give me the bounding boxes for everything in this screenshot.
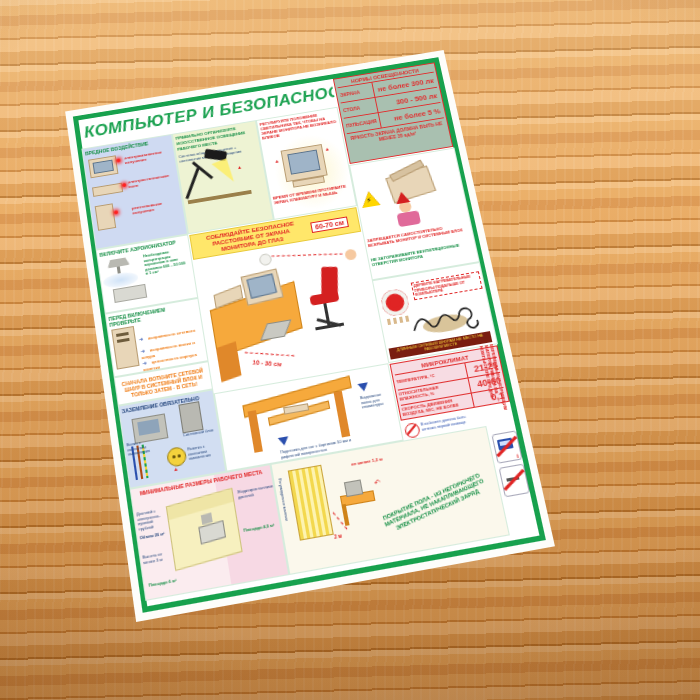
lamp-light-cone	[212, 158, 236, 186]
row-label: ЭКРАНА	[339, 87, 374, 98]
grounding-label: Розетка с контактом заземления	[187, 442, 221, 462]
ionizer-note: Необходимая концентрация аэроионов в зон…	[143, 248, 189, 277]
head-icon	[344, 248, 357, 260]
heater-note: ДЕРЖИТЕ НАГРЕВАТЕЛЬНЫЕ ПРИБОРЫ ПОДАЛЬШЕ …	[411, 271, 483, 300]
system-unit-icon	[111, 326, 139, 370]
crt-label: Дисплей с электронно-лучевой трубкой	[136, 508, 166, 533]
sight-line	[271, 253, 342, 256]
aisle-value: не менее 1,2 м	[351, 456, 383, 467]
red-arrow-icon: ▲	[237, 165, 243, 170]
prohibition-circle-icon	[404, 422, 421, 439]
illumination-table: НОРМЫ ОСВЕЩЕННОСТИ ЭКРАНА не более 300 л…	[333, 62, 453, 164]
red-arrow-icon: ▲	[324, 147, 330, 152]
no-laptop-sign-icon: i	[491, 430, 522, 463]
keyboard-distance-value: 10 - 30 см	[252, 359, 282, 367]
room-cube	[166, 488, 243, 572]
striped-hat-icon	[394, 191, 410, 205]
info-mark: i	[516, 453, 519, 460]
open-system-unit-icon	[385, 166, 436, 204]
airflow-arrow-icon: ↶	[374, 478, 382, 488]
height-label: Высота не менее 3 м	[142, 551, 171, 566]
poster-tilt-wrapper: КОМПЬЮТЕР И БЕЗОПАСНОСТЬ НОРМЫ ОСВЕЩЕННО…	[65, 50, 555, 622]
harmful-panel: ВРЕДНОЕ ВОЗДЕЙСТВИЕ электромагнитное изл…	[83, 135, 187, 249]
keyboard-distance-line	[245, 352, 295, 356]
wooden-desk-photo: КОМПЬЮТЕР И БЕЗОПАСНОСТЬ НОРМЫ ОСВЕЩЕННО…	[0, 0, 700, 700]
floor-note: ПОКРЫТИЕ ПОЛА - ИЗ НЕГОРЮЧЕГО МАТЕРИАЛА,…	[374, 468, 495, 538]
area-crt-label: Площадь 6 м²	[148, 579, 176, 589]
red-arrow-icon: ▲	[274, 159, 280, 164]
monitor-icon	[88, 155, 118, 178]
area-lcd-label: Площадь 4,5 м²	[243, 523, 275, 533]
volume-label: Объем 20 м³	[140, 532, 166, 541]
tray-note-label: Выдвижная полка для клавиатуры	[360, 391, 392, 410]
workplace-panel: МИНИМАЛЬНЫЕ РАЗМЕРЫ РАБОЧЕГО МЕСТА Диспл…	[131, 465, 288, 599]
poster-margin: КОМПЬЮТЕР И БЕЗОПАСНОСТЬ НОРМЫ ОСВЕЩЕННО…	[65, 50, 555, 622]
row-label: СТОЛА	[342, 102, 377, 113]
electric-warning-triangle-icon: ⚡	[360, 190, 381, 208]
lcd-label: Жидкокристаллический дисплей	[237, 485, 270, 500]
desk-leg	[248, 410, 263, 453]
red-arrow-icon: ▲	[173, 466, 179, 472]
system-unit-icon	[178, 401, 203, 433]
keyboard-icon	[92, 183, 123, 197]
no-smoking-sign-icon	[499, 464, 530, 498]
poster-green-frame: КОМПЬЮТЕР И БЕЗОПАСНОСТЬ НОРМЫ ОСВЕЩЕННО…	[73, 57, 546, 613]
hazard-label: рентгеновское излучение	[131, 198, 180, 215]
poster-pad: КОМПЬЮТЕР И БЕЗОПАСНОСТЬ НОРМЫ ОСВЕЩЕННО…	[65, 50, 555, 622]
desk-lamp-icon	[185, 168, 199, 199]
system-unit-icon	[95, 203, 117, 231]
no-open-panel: ⚡ ЗАПРЕЩАЕТСЯ САМОСТОЯТЕЛЬНО ВСКРЫВАТЬ М…	[350, 149, 478, 280]
grounding-label: Вилка с контактом заземления	[126, 437, 162, 457]
hazard-label: электростатическое поле	[127, 172, 176, 189]
monitor-icon	[344, 479, 364, 497]
lighting-panel: ПРАВИЛЬНО ОРГАНИЗУЙТЕ ИСКУССТВЕННОЕ ОСВЕ…	[173, 121, 273, 233]
distance-value: 60-70 см	[310, 216, 349, 233]
window-distance-value: 2 м	[334, 533, 343, 540]
glare-note-2: ВРЕМЯ ОТ ВРЕМЕНИ ПРОТИРАЙТЕ ЭКРАН, КЛАВИ…	[273, 183, 350, 205]
hazard-label: электромагнитное излучение	[124, 148, 173, 165]
grounding-panel: ЗАЗЕМЛЕНИЕ ОБЯЗАТЕЛЬНО Системный блок ▲ …	[119, 390, 225, 487]
window-blinds-icon	[288, 465, 334, 541]
tray-note: Выдвижная полка для клавиатуры	[356, 373, 391, 410]
row-label: ПУЛЬСАЦИЯ	[345, 118, 380, 129]
